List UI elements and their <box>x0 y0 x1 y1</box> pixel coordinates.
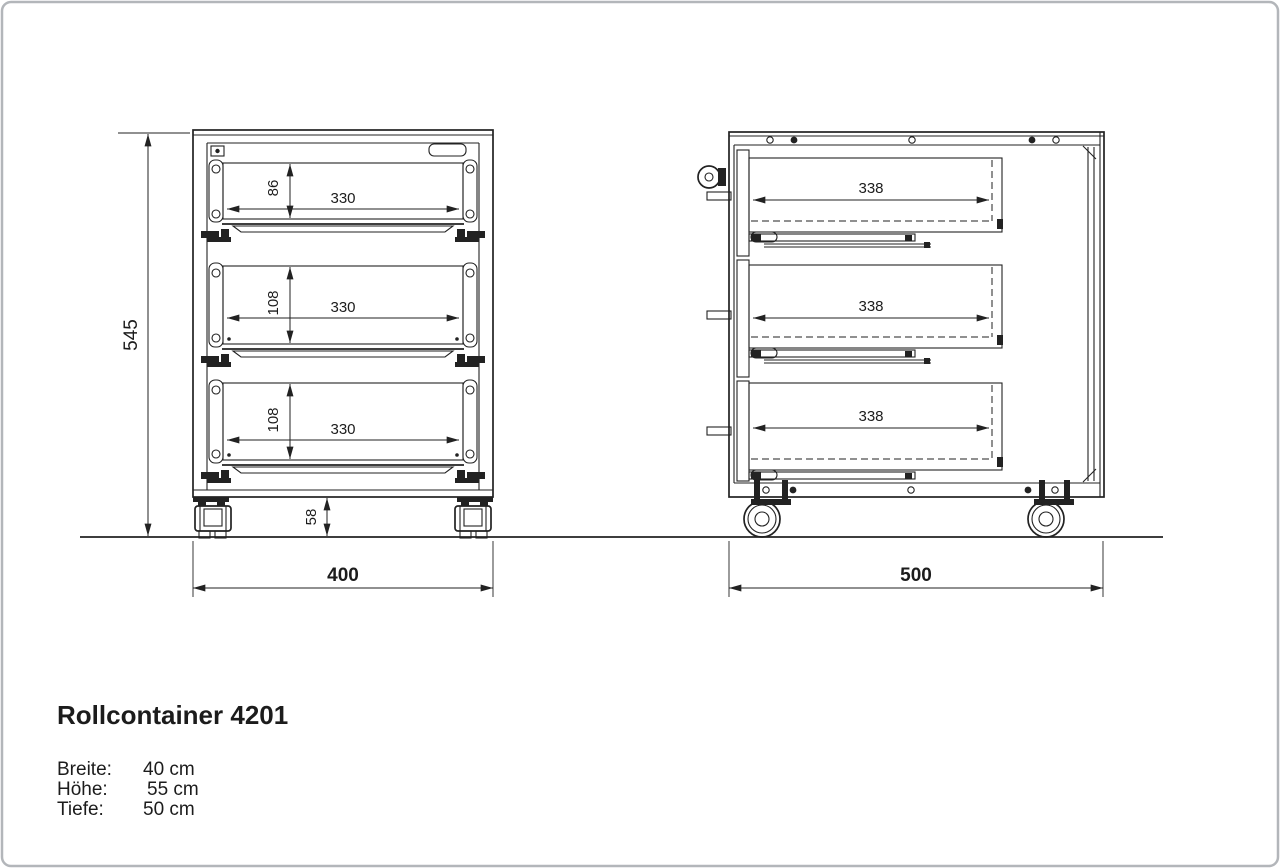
spec-breite-label: Breite: <box>57 759 112 780</box>
overall-height-label: 545 <box>121 319 142 351</box>
caster-height-label: 58 <box>303 509 320 526</box>
technical-drawing-page: 330 86 330 108 <box>0 0 1280 868</box>
rollcontainer-drawing: 330 86 330 108 <box>0 0 1280 868</box>
drawer2-width-label: 330 <box>330 299 355 316</box>
spec-hoehe-value: 55 cm <box>147 779 199 800</box>
drawer2-height-label: 108 <box>265 290 282 315</box>
drawer3-width-label: 330 <box>330 421 355 438</box>
spec-tiefe-value: 50 cm <box>143 799 195 820</box>
spec-hoehe-label: Höhe: <box>57 779 108 800</box>
lock-pin-icon <box>215 149 219 153</box>
drawer1-width-label: 330 <box>330 190 355 207</box>
spec-tiefe-label: Tiefe: <box>57 799 104 820</box>
drawer2-depth-label: 338 <box>858 298 883 315</box>
drawer1-depth-label: 338 <box>858 180 883 197</box>
drawer3-height-label: 108 <box>265 407 282 432</box>
overall-width-label: 400 <box>327 565 359 586</box>
drawer1-height-label: 86 <box>265 180 282 197</box>
drawing-title: Rollcontainer 4201 <box>57 700 288 730</box>
drawer3-depth-label: 338 <box>858 408 883 425</box>
spec-breite-value: 40 cm <box>143 759 195 780</box>
overall-depth-label: 500 <box>900 565 932 586</box>
